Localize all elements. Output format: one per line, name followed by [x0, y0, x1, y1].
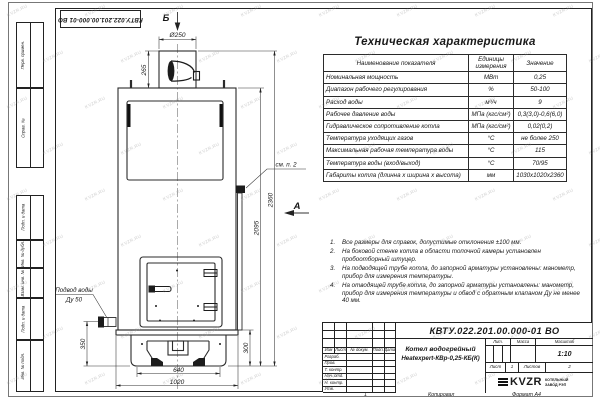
- scale-header: Масштаб: [536, 339, 593, 346]
- mass-header: Масса: [511, 339, 536, 346]
- frame-side-cell-label: Справ. №: [17, 89, 31, 167]
- titleblock-empty-cell: [335, 339, 347, 348]
- spec-param-value: 50-100: [513, 84, 566, 96]
- spec-param-name: Температура уходящих газов: [324, 133, 469, 145]
- titleblock-empty-cell: [323, 323, 335, 331]
- titleblock-empty-cell: [347, 387, 373, 394]
- spec-table-row: Рабочее давление водыМПа (кгс/см²)0,3(3,…: [324, 108, 567, 120]
- spec-param-units: м³/ч: [469, 96, 514, 108]
- spec-param-name: Расход воды: [324, 96, 469, 108]
- sheet-label: Лист: [486, 363, 506, 373]
- spec-param-units: МВт: [469, 72, 514, 84]
- spec-param-name: Габариты котла (длинна х ширина х высота…: [324, 169, 469, 181]
- frame-side-cell-text: Подп. и дата: [21, 204, 25, 231]
- frame-side-cell-label: Подп. и дата: [17, 196, 31, 239]
- spec-header-name: Наименование показателя: [324, 55, 469, 72]
- frame-side-cell: Справ. №: [16, 88, 44, 168]
- spec-param-value: 1030х1020х2360: [513, 169, 566, 181]
- spec-header-units: Единицы измерения: [469, 55, 514, 72]
- spec-param-value: 9: [513, 96, 566, 108]
- note-item: 2.На боковой стенке котла в области топо…: [330, 248, 584, 263]
- titleblock-empty-cell: [323, 339, 335, 348]
- spec-table-row: Номинальная мощностьМВт0,25: [324, 72, 567, 84]
- titleblock-empty-cell: [373, 331, 385, 339]
- spec-param-name: Рабочее давление воды: [324, 108, 469, 120]
- lit-cell-2: [494, 346, 502, 363]
- spec-table: Наименование показателя Единицы измерени…: [323, 54, 567, 182]
- spec-param-units: мм: [469, 169, 514, 181]
- lit-cell-1: [486, 346, 494, 363]
- title-block: ИзмЛист№ докум.Подп.ДатаРазраб.Пров.Т. к…: [322, 322, 592, 392]
- spec-param-name: Диапазон рабочего регулирования: [324, 84, 469, 96]
- spec-header-row: Наименование показателя Единицы измерени…: [324, 55, 567, 72]
- sheet-value: 1: [506, 363, 519, 373]
- titleblock-empty-cell: [347, 323, 373, 331]
- note-text: На боковой стенке котла в области топочн…: [342, 248, 584, 263]
- titleblock-right-section: Лит. Масса Масштаб 1:10 Лист 1 Листов 2 …: [486, 339, 593, 393]
- frame-side-cell-label: Инв. № дубл.: [17, 241, 31, 267]
- titleblock-right-values: 1:10: [486, 346, 593, 363]
- spec-param-value: не более 250: [513, 133, 566, 145]
- copied-label: Копировал: [428, 393, 454, 398]
- spec-param-name: Температура воды (вход/выход): [324, 157, 469, 169]
- spec-param-units: °С: [469, 145, 514, 157]
- spec-title: Техническая характеристика: [323, 36, 567, 48]
- frame-side-cell-text: Перв. примен.: [21, 41, 25, 70]
- frame-side-cell-text: Подп. и дата: [21, 306, 25, 333]
- spec-param-name: Максимальная рабочая температура воды: [324, 145, 469, 157]
- top-doc-number-box: КВТУ.022.201.00.000-01 ВО: [60, 10, 141, 28]
- spec-table-row: Расход водым³/ч9: [324, 96, 567, 108]
- note-text: Все размеры для справок, допустимые откл…: [342, 239, 521, 247]
- titleblock-product-name: Котел водогрейный Heatexpert-КВр-0,25-КБ…: [396, 339, 486, 393]
- spec-table-row: Температура уходящих газов°Сне более 250: [324, 133, 567, 145]
- titleblock-empty-cell: [385, 387, 397, 394]
- note-item: 3.На подводящей трубе котла, до запорной…: [330, 265, 584, 280]
- notes-list: 1.Все размеры для справок, допустимые от…: [330, 239, 584, 307]
- spec-param-value: 115: [513, 145, 566, 157]
- titleblock-empty-cell: [323, 331, 335, 339]
- spec-table-row: Температура воды (вход/выход)°С70/95: [324, 157, 567, 169]
- product-name-line2: Heatexpert-КВр-0,25-КБ(К): [401, 355, 479, 363]
- titleblock-empty-cell: [385, 331, 397, 339]
- drawing-sheet: Ø250 265 2360 2095 300 350 640 1020 см. …: [0, 0, 600, 400]
- frame-side-cell-label: Подп. и дата: [17, 299, 31, 339]
- note-item: 4.На отводящей трубе котла, до запорной …: [330, 282, 584, 305]
- spec-table-row: Максимальная рабочая температура воды°С1…: [324, 145, 567, 157]
- frame-side-cell-text: Справ. №: [21, 118, 25, 138]
- top-doc-number: КВТУ.022.201.00.000-01 ВО: [58, 16, 143, 23]
- format-label: Формат А4: [512, 393, 541, 398]
- spec-table-row: Диапазон рабочего регулирования%50-100: [324, 84, 567, 96]
- spec-table-row: Гидравлическое сопротивление котлаМПа (к…: [324, 121, 567, 133]
- titleblock-empty-cell: [373, 387, 385, 394]
- frame-side-cell: Подп. и дата: [16, 195, 44, 240]
- logo-text: KVZR: [510, 377, 542, 388]
- titleblock-empty-cell: [385, 323, 397, 331]
- spec-param-value: 0,3(3,0)-0,6(6,0): [513, 108, 566, 120]
- spec-param-value: 0,02(0,2): [513, 121, 566, 133]
- titleblock-empty-cell: [335, 323, 347, 331]
- spec-param-units: %: [469, 84, 514, 96]
- note-number: 2.: [330, 248, 342, 263]
- spec-param-value: 0,25: [513, 72, 566, 84]
- logo-subtext: КОТЕЛЬНЫЙ ЗАВОД РЭП: [545, 378, 568, 387]
- spec-param-value: 70/95: [513, 157, 566, 169]
- titleblock-sheets-row: Лист 1 Листов 2: [486, 363, 593, 373]
- spec-param-name: Номинальная мощность: [324, 72, 469, 84]
- spec-table-body: Номинальная мощностьМВт0,25Диапазон рабо…: [324, 72, 567, 182]
- titleblock-doc-number: КВТУ.022.201.00.000-01 ВО: [396, 323, 593, 339]
- sheets-value: 2: [546, 363, 593, 373]
- titleblock-empty-cell: [373, 339, 385, 348]
- company-logo: KVZR КОТЕЛЬНЫЙ ЗАВОД РЭП: [486, 373, 593, 392]
- lit-header: Лит.: [486, 339, 511, 346]
- mass-cell: [511, 346, 536, 363]
- titleblock-right-headers: Лит. Масса Масштаб: [486, 339, 593, 346]
- frame-side-cell: Инв. № дубл.: [16, 240, 44, 268]
- spec-param-units: МПа (кгс/см²): [469, 108, 514, 120]
- sheets-label: Листов: [519, 363, 546, 373]
- spec-section: Техническая характеристика Наименование …: [323, 36, 567, 182]
- spec-param-units: °С: [469, 157, 514, 169]
- titleblock-empty-cell: [347, 339, 373, 348]
- titleblock-empty-cell: [385, 339, 397, 348]
- frame-side-cell: Подп. и дата: [16, 298, 44, 340]
- spec-param-name: Гидравлическое сопротивление котла: [324, 121, 469, 133]
- note-text: На отводящей трубе котла, до запорной ар…: [342, 282, 584, 305]
- note-number: 1.: [330, 239, 342, 247]
- frame-side-cell-label: Взам. инв. №: [17, 269, 31, 297]
- sheet-bottom-mark: 1: [364, 393, 367, 398]
- frame-side-cell: Перв. примен.: [16, 22, 44, 88]
- frame-side-cell-text: Взам. инв. №: [21, 270, 25, 297]
- frame-side-cell: Инв. № подл.: [16, 340, 44, 392]
- logo-subtext-line2: ЗАВОД РЭП: [545, 383, 568, 387]
- spec-table-row: Габариты котла (длинна х ширина х высота…: [324, 169, 567, 181]
- note-number: 4.: [330, 282, 342, 305]
- titleblock-empty-cell: [335, 331, 347, 339]
- note-text: На подводящей трубе котла, до запорной а…: [342, 265, 584, 280]
- spec-param-units: °С: [469, 133, 514, 145]
- frame-side-cell-label: Перв. примен.: [17, 23, 31, 87]
- lit-cell-3: [503, 346, 511, 363]
- titleblock-empty-cell: [373, 323, 385, 331]
- frame-side-cell: Взам. инв. №: [16, 268, 44, 298]
- frame-side-cell-text: Инв. № подл.: [21, 353, 25, 380]
- frame-side-cell-label: Инв. № подл.: [17, 341, 31, 391]
- scale-value: 1:10: [536, 346, 593, 363]
- note-number: 3.: [330, 265, 342, 280]
- spec-param-units: МПа (кгс/см²): [469, 121, 514, 133]
- note-item: 1.Все размеры для справок, допустимые от…: [330, 239, 584, 247]
- logo-bars-icon: [498, 378, 508, 387]
- spec-header-value: Значение: [513, 55, 566, 72]
- titleblock-empty-cell: [347, 331, 373, 339]
- frame-side-cell-text: Инв. № дубл.: [21, 241, 25, 267]
- titleblock-row-label: Утв.: [323, 387, 347, 394]
- product-name-line1: Котел водогрейный: [405, 346, 475, 355]
